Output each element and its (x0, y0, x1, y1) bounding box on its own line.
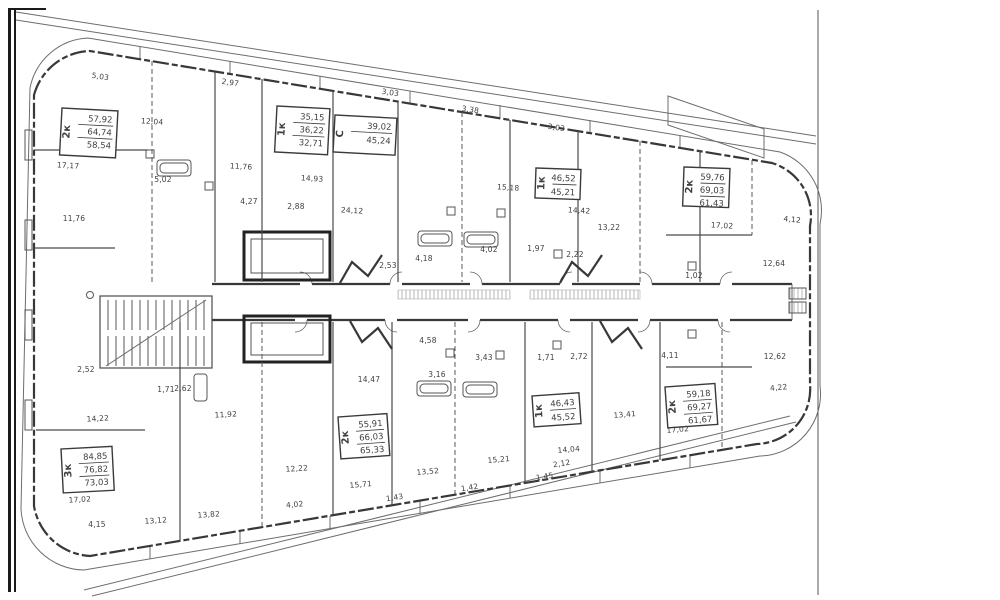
stamp-area-value: 55,91 (358, 419, 383, 431)
stamp-area-value: 45,24 (366, 136, 391, 147)
room-area-label: 1,97 (527, 244, 545, 253)
corridor-floor-hatch (530, 290, 640, 299)
room-area-label: 1,43 (385, 492, 404, 504)
room-area-label: 12,04 (141, 116, 164, 127)
stamp-area-value: 39,02 (367, 122, 392, 133)
room-area-label: 3,43 (475, 353, 493, 362)
room-area-label: 14,93 (301, 173, 324, 183)
room-area-label: 17,02 (666, 424, 689, 435)
apartment-stamp: 2к57,9264,7458,54 (60, 108, 118, 158)
room-area-label: 11,76 (63, 214, 85, 223)
room-area-label: 2,22 (566, 250, 584, 259)
stamp-area-value: 65,33 (360, 445, 385, 457)
bathtub (418, 231, 452, 246)
stamp-area-value: 69,03 (700, 186, 725, 197)
apartment-stamp: 1к35,1536,2232,71 (275, 106, 330, 155)
stamp-area-value: 73,03 (84, 478, 109, 489)
room-area-label: 1,02 (685, 271, 703, 280)
apartment-entry-doors (295, 272, 732, 332)
room-area-label: 15,21 (487, 454, 510, 465)
room-area-label: 13,22 (598, 223, 620, 232)
elevator-shafts (244, 232, 330, 362)
room-area-label: 13,41 (613, 409, 636, 420)
room-area-label: 2,52 (77, 365, 95, 374)
stamp-unit-type: 1к (276, 122, 288, 137)
apartment-stamps: 2к57,9264,7458,541к35,1536,2232,71С39,02… (60, 106, 730, 493)
room-area-label: 2,72 (570, 352, 588, 361)
room-area-label: 13,52 (416, 466, 439, 477)
room-area-label: 17,17 (57, 160, 80, 170)
room-area-label: 13,82 (197, 509, 220, 520)
room-area-label: 14,04 (557, 444, 580, 455)
stamp-area-value: 36,22 (299, 125, 324, 136)
room-area-label: 12,64 (763, 259, 785, 268)
room-area-label: 4,22 (770, 382, 788, 393)
stamp-area-value: 59,76 (700, 173, 725, 184)
site-boundary-lines (16, 12, 816, 596)
apartment-stamp: 1к46,5245,21 (535, 168, 581, 200)
room-area-label: 2,62 (174, 384, 192, 393)
stamp-area-value: 35,15 (300, 112, 325, 123)
bathtub (463, 382, 497, 397)
stamp-area-value: 69,27 (687, 402, 712, 414)
stamp-area-value: 45,52 (551, 412, 576, 424)
sheet-frame (8, 8, 818, 595)
room-area-label: 2,88 (287, 202, 305, 211)
room-area-label: 4,02 (286, 499, 304, 509)
stamp-area-value: 66,03 (359, 432, 384, 444)
room-area-label: 14,42 (568, 205, 591, 215)
stamp-area-value: 45,21 (551, 188, 576, 199)
stamp-unit-type: 2к (684, 179, 695, 193)
room-area-label: 4,18 (415, 254, 433, 263)
room-area-label: 2,12 (552, 458, 571, 470)
room-area-label: 14,47 (358, 375, 380, 384)
room-area-label: 2,53 (379, 261, 397, 270)
room-area-label: 4,15 (88, 520, 106, 529)
stamp-unit-type: 3к (63, 463, 75, 478)
room-area-label: 1,71 (157, 385, 175, 394)
stamp-unit-type: 2к (340, 430, 352, 445)
room-area-label: 2,97 (221, 77, 240, 88)
stamp-area-value: 84,85 (83, 452, 108, 463)
room-area-label: 15,71 (349, 479, 372, 490)
stamp-unit-type: 1к (536, 176, 547, 190)
apartment-stamp: 2к55,9166,0365,33 (338, 414, 390, 459)
stamp-area-value: 46,52 (551, 174, 576, 185)
room-area-label: 17,02 (711, 220, 734, 230)
stamp-unit-type: 2к (61, 124, 73, 139)
stamp-area-value: 64,74 (87, 127, 112, 138)
stamp-area-value: 76,82 (84, 465, 109, 476)
room-area-label: 5,02 (154, 175, 172, 184)
room-area-label: 12,22 (285, 463, 308, 474)
bathtub (157, 160, 191, 176)
room-area-label: 4,12 (783, 214, 801, 225)
room-area-label: 14,22 (86, 413, 109, 423)
stamp-unit-type: 2к (667, 400, 679, 415)
stamp-area-value: 61,43 (699, 199, 724, 210)
stamp-unit-type: С (335, 130, 346, 138)
room-area-label: 4,27 (240, 197, 258, 206)
room-area-label: 3,16 (428, 370, 446, 379)
room-area-label: 4,58 (419, 336, 437, 345)
room-area-label: 11,92 (214, 409, 237, 419)
room-area-label: 4,11 (661, 351, 679, 360)
bathtub (194, 374, 207, 401)
room-area-label: 11,76 (230, 161, 253, 171)
apartment-stamp: 2к59,7669,0361,43 (683, 167, 730, 210)
corridor-floor-hatch (398, 290, 510, 299)
apartment-stamp: 1к46,4345,52 (532, 393, 581, 427)
stamp-area-value: 57,92 (88, 114, 113, 125)
outer-walls (25, 51, 811, 556)
stamp-area-value: 32,71 (298, 138, 323, 149)
room-area-label: 24,12 (341, 205, 364, 215)
room-area-label: 1,71 (537, 353, 555, 362)
room-area-label: 12,62 (764, 352, 786, 361)
room-area-label: 15,18 (497, 182, 520, 193)
balcony-dividers-top (140, 46, 680, 148)
room-area-label: 3,03 (381, 87, 400, 98)
room-area-label: 1,45 (535, 471, 554, 483)
floorplan-sheet: 2к57,9264,7458,541к35,1536,2232,71С39,02… (0, 0, 1000, 600)
room-area-label: 5,03 (91, 71, 110, 82)
stamp-area-value: 46,43 (550, 398, 575, 410)
apartment-stamp: 3к84,8576,8273,03 (61, 446, 114, 493)
staircase (100, 296, 212, 368)
stamp-area-value: 59,18 (686, 389, 711, 401)
bathtub (417, 381, 451, 396)
room-area-label: 13,12 (144, 515, 167, 526)
stamp-area-value: 61,67 (688, 415, 713, 427)
apartment-stamp: С39,0245,24 (333, 115, 397, 155)
apartment-stamp: 2к59,1869,2761,67 (665, 384, 718, 428)
stamp-area-value: 58,54 (86, 140, 111, 151)
floorplan-drawing: 2к57,9264,7458,541к35,1536,2232,71С39,02… (0, 0, 1000, 600)
room-area-label: 3,03 (547, 122, 566, 133)
stamp-unit-type: 1к (534, 404, 546, 419)
room-area-label: 4,02 (480, 245, 498, 254)
room-area-label: 17,02 (68, 494, 91, 504)
